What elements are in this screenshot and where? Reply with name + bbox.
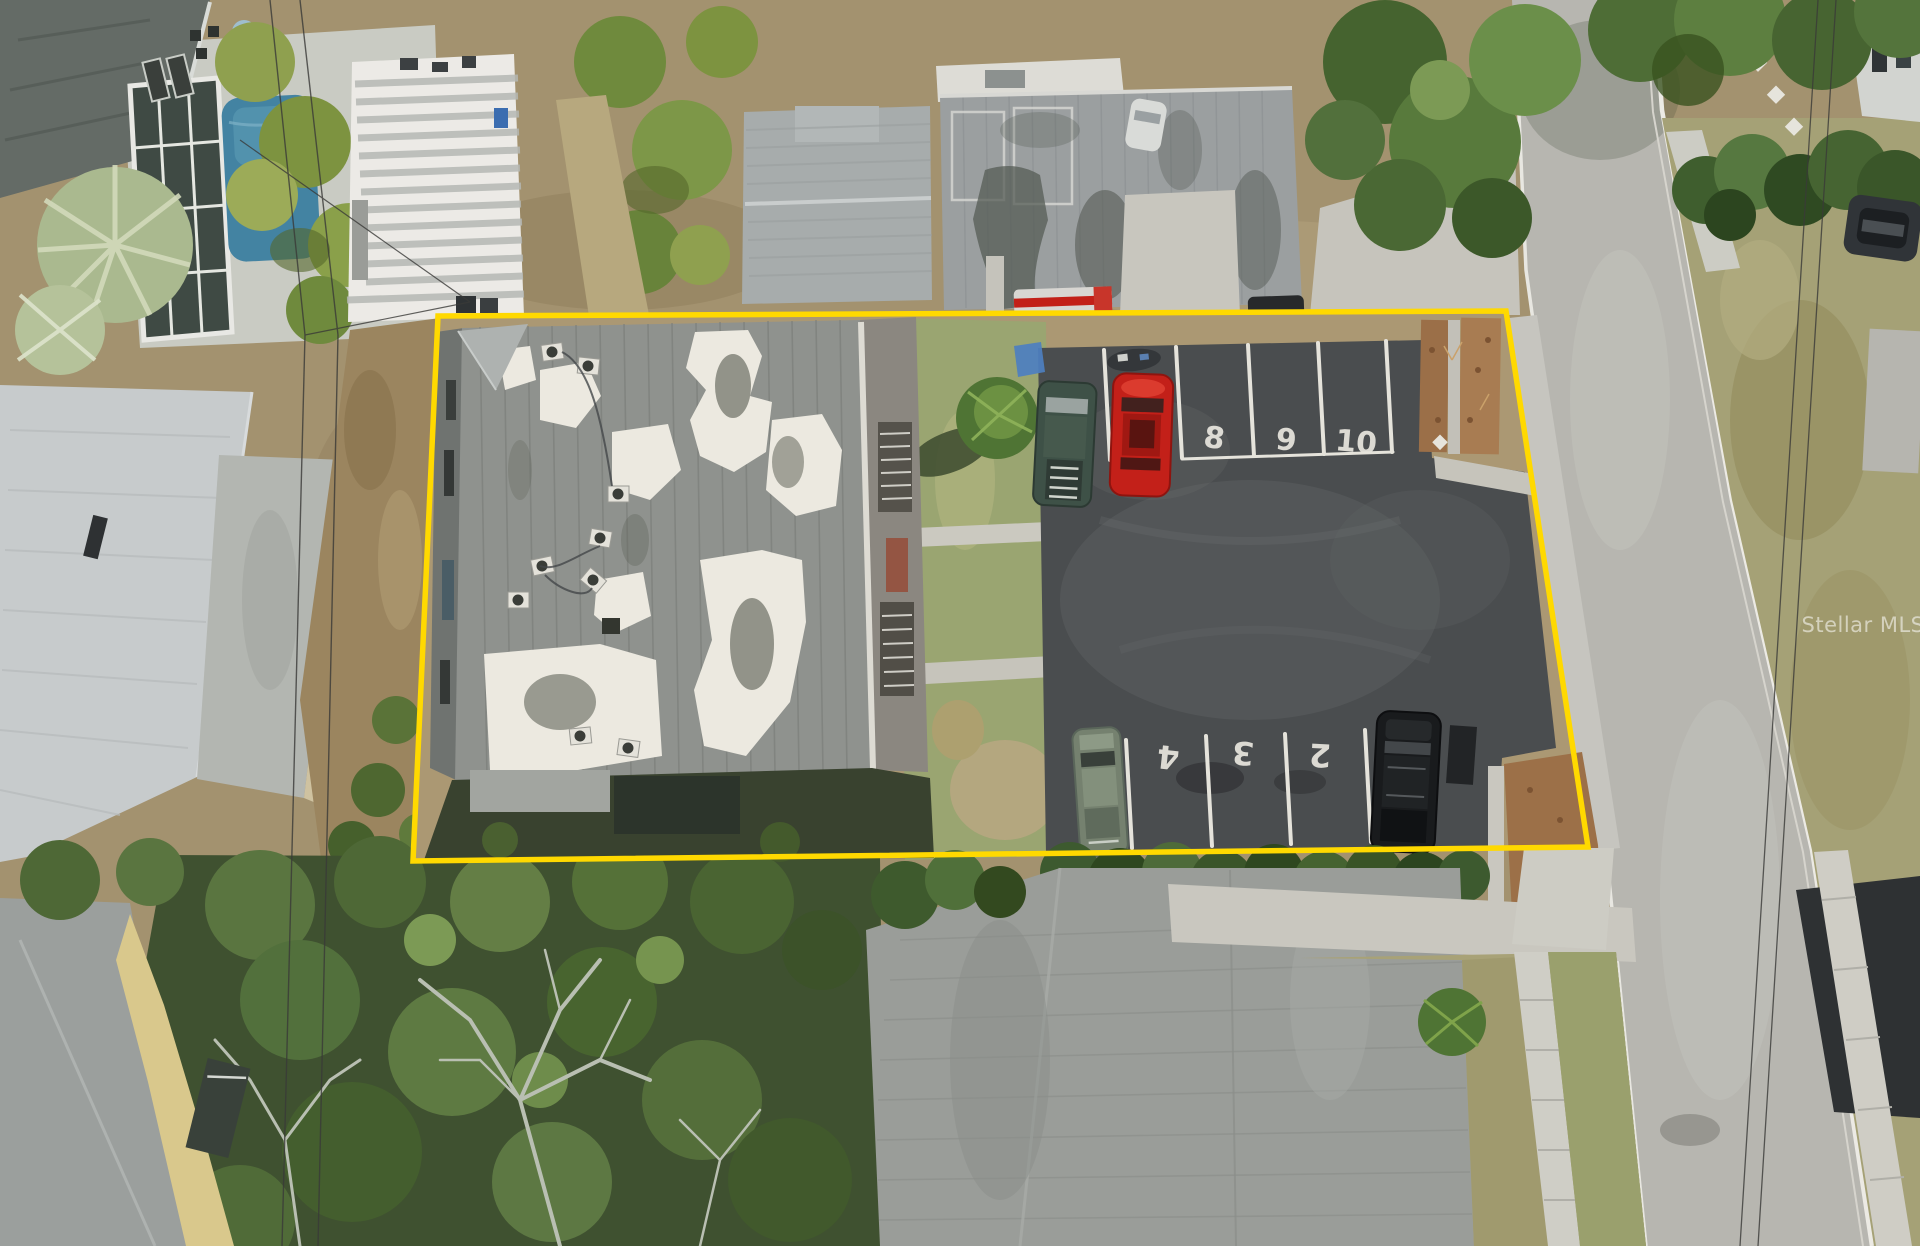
green-suv xyxy=(1033,381,1097,508)
se-driveway-apron xyxy=(1512,848,1614,950)
space-number-3: 3 xyxy=(1231,733,1256,772)
east-driveway xyxy=(1862,329,1920,474)
aerial-photo: 8 9 10 4 3 2 xyxy=(0,0,1920,1246)
space-number-9: 9 xyxy=(1274,422,1298,459)
red-landing xyxy=(886,538,908,592)
east-parked-car xyxy=(1842,193,1920,263)
striped-roof-building xyxy=(347,54,524,322)
dark-bin-by-suv xyxy=(1446,725,1477,785)
stairs-south xyxy=(880,602,914,696)
space-number-10: 10 xyxy=(1334,423,1379,462)
sage-sedan xyxy=(1072,726,1129,857)
red-car xyxy=(1109,373,1173,497)
rear-awning xyxy=(470,770,610,812)
watermark: Stellar MLS xyxy=(1802,613,1920,637)
blue-bin xyxy=(494,108,508,128)
lawn-palm-bush xyxy=(1418,988,1486,1056)
stairs-north xyxy=(878,422,912,512)
subject-lot: 8 9 10 4 3 2 xyxy=(413,311,1620,922)
aerial-photo-svg: 8 9 10 4 3 2 xyxy=(0,0,1920,1246)
blue-tarp xyxy=(1014,342,1045,377)
space-number-4: 4 xyxy=(1155,737,1181,777)
east-walkway xyxy=(860,317,928,772)
space-number-2: 2 xyxy=(1308,735,1332,774)
subject-building xyxy=(424,317,934,862)
south-neighbor xyxy=(866,848,1646,1246)
black-suv xyxy=(1370,710,1441,853)
bottom-trees xyxy=(130,834,885,1246)
